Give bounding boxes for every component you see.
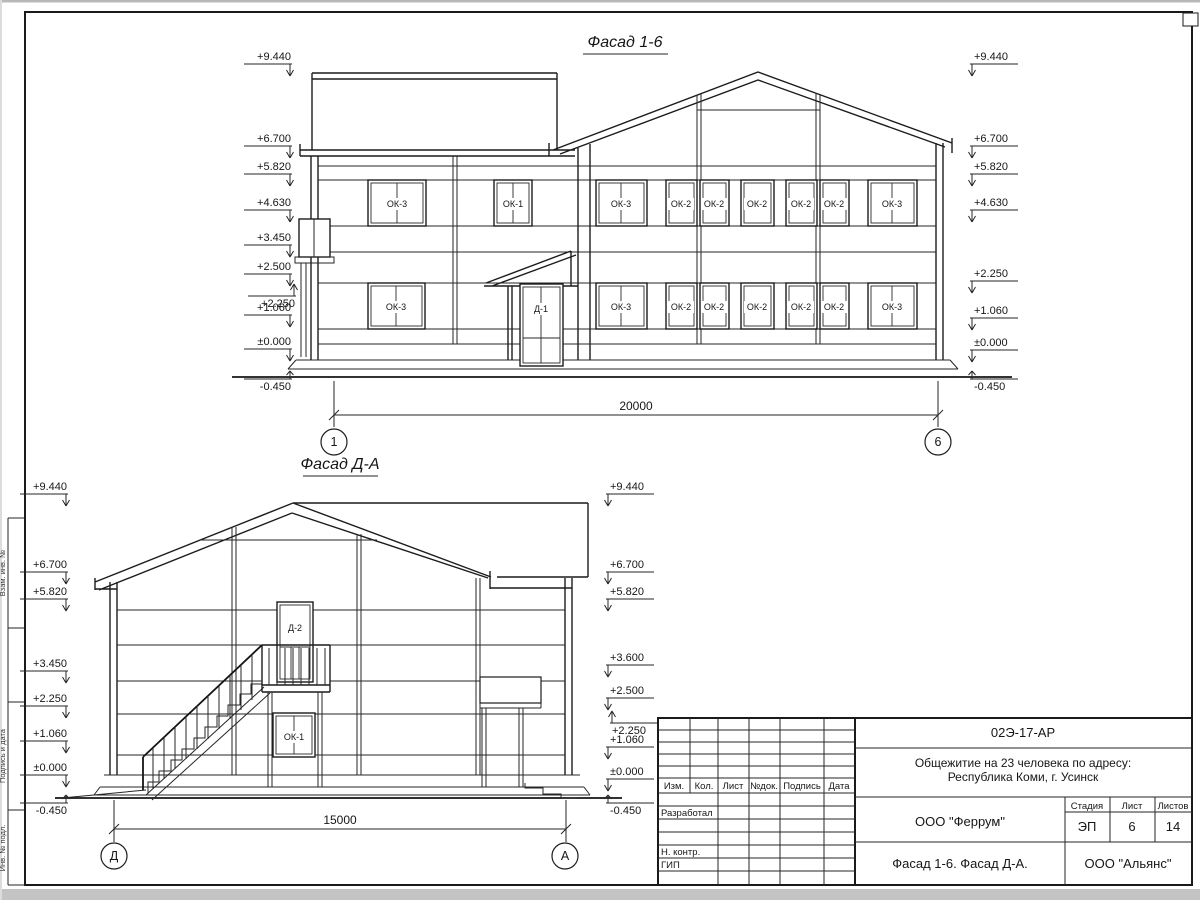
window: ОК-2 — [700, 180, 729, 226]
window: ОК-3 — [868, 180, 917, 226]
facade-d-a-title: Фасад Д-А — [300, 456, 379, 473]
role-gip: ГИП — [661, 860, 680, 871]
elevation-mark: +3.450 — [33, 658, 67, 670]
client-org: ООО "Альянс" — [1085, 856, 1172, 871]
dimension-20000: 20000 — [329, 381, 943, 427]
window: ОК-2 — [741, 180, 774, 226]
stage-value: ЭП — [1078, 819, 1097, 834]
elevation-mark: +2.250 — [33, 693, 67, 705]
rev-header-izm: Изм. — [664, 781, 684, 792]
entrance-door: Д-1 — [520, 284, 563, 366]
window-label: ОК-3 — [882, 302, 902, 312]
designer-org: ООО "Феррум" — [915, 814, 1005, 829]
elevation-mark: -0.450 — [36, 805, 67, 817]
project-name-line2: Республика Коми, г. Усинск — [948, 770, 1099, 784]
page-edge-bottom — [0, 889, 1200, 900]
window-label: ОК-2 — [824, 302, 844, 312]
window: ОК-1 — [494, 180, 532, 226]
side-column-label: Подпись и дата — [0, 728, 7, 783]
roof-lines — [95, 503, 588, 590]
window-label: ОК-2 — [747, 302, 767, 312]
elevation-mark: +5.820 — [257, 161, 291, 173]
stair-rail — [143, 645, 262, 790]
elevation-mark: +6.700 — [257, 133, 291, 145]
elevation-mark: +3.600 — [610, 652, 644, 664]
page-edge-top — [0, 0, 1200, 3]
elevation-mark: +1.060 — [33, 728, 67, 740]
elevation-mark: +3.450 — [257, 232, 291, 244]
window-label: ОК-2 — [824, 199, 844, 209]
window-label: ОК-2 — [704, 302, 724, 312]
elevation-mark: +6.700 — [610, 559, 644, 571]
plinth-lines — [288, 360, 958, 369]
axis-label: А — [561, 849, 570, 863]
stair-steps — [148, 684, 262, 793]
rev-header-kol: Кол. — [695, 781, 714, 792]
elevation-marks-right: +9.440 +6.700 +5.820 +3.600 +2.500 +2.25… — [605, 481, 659, 817]
elevation-marks-right: +9.440 +6.700 +5.820 +4.630 +2.250 +1.06… — [969, 51, 1019, 393]
elevation-mark: +2.500 — [610, 685, 644, 697]
window-label: ОК-2 — [671, 302, 691, 312]
window-label: ОК-3 — [611, 199, 631, 209]
axis-bubbles: 1 6 — [321, 429, 951, 455]
rev-header-doc: №док. — [750, 781, 778, 792]
sheets-label: Листов — [1158, 801, 1189, 812]
axis-bubbles: Д А — [101, 843, 578, 869]
elevation-mark: -0.450 — [974, 381, 1005, 393]
window-label: ОК-3 — [387, 199, 407, 209]
elevation-mark: +4.630 — [974, 197, 1008, 209]
elevation-mark: -0.450 — [260, 381, 291, 393]
door-label: Д-2 — [288, 623, 302, 633]
elevation-mark: +5.820 — [610, 586, 644, 598]
sheet-title: Фасад 1-6. Фасад Д-А. — [892, 856, 1028, 871]
landing-slab — [262, 685, 330, 692]
elevation-marks-left: +9.440 +6.700 +5.820 +4.630 +3.450 +2.50… — [244, 51, 298, 393]
dimension-text: 15000 — [323, 813, 357, 827]
window: ОК-3 — [868, 283, 917, 329]
dimension-text: 20000 — [619, 399, 653, 413]
elevation-mark: -0.450 — [610, 805, 641, 817]
title-block: 02Э-17-АР Общежитие на 23 человека по ад… — [658, 718, 1192, 885]
window: ОК-3 — [368, 180, 426, 226]
window: ОК-2 — [786, 283, 817, 329]
elevation-mark: +6.700 — [33, 559, 67, 571]
drawing-sheet: Взам. инв. № Подпись и дата Инв. № подл.… — [0, 0, 1200, 900]
porch-canopy — [480, 677, 577, 798]
axis-label: 1 — [331, 435, 338, 449]
sheet-number: 6 — [1128, 819, 1135, 834]
window: ОК-2 — [786, 180, 817, 226]
stair-balusters — [153, 654, 252, 789]
window: ОК-2 — [820, 283, 849, 329]
window: ОК-3 — [596, 180, 647, 226]
window: ОК-2 — [741, 283, 774, 329]
window: ОК-2 — [820, 180, 849, 226]
elevation-mark: +5.820 — [974, 161, 1008, 173]
elevation-mark: +6.700 — [974, 133, 1008, 145]
rev-header-data: Дата — [828, 781, 850, 792]
window-label: ОК-1 — [503, 199, 523, 209]
window: ОК-2 — [666, 283, 697, 329]
facade-1-6-view: Фасад 1-6 ОК-3 ОК-1 ОК-3 ОК-2 ОК-2 ОК-2 … — [232, 34, 1018, 455]
window: ОК-2 — [666, 180, 697, 226]
role-ncontrol: Н. контр. — [661, 847, 700, 858]
side-column-lines — [8, 518, 25, 885]
elevation-mark: +9.440 — [33, 481, 67, 493]
window: ОК-3 — [368, 283, 425, 329]
window-label: ОК-3 — [386, 302, 406, 312]
facade-1-6-title: Фасад 1-6 — [588, 34, 663, 51]
window-label: ОК-2 — [791, 199, 811, 209]
upper-door: Д-2 — [277, 602, 313, 682]
project-name-line1: Общежитие на 23 человека по адресу: — [915, 756, 1131, 770]
windows-lower-row: ОК-3 ОК-3 ОК-2 ОК-2 ОК-2 ОК-2 ОК-2 ОК-3 … — [368, 283, 917, 366]
siding-and-joint-lines — [117, 527, 565, 775]
rev-header-list: Лист — [723, 781, 744, 792]
elevation-mark: ±0.000 — [33, 762, 67, 774]
elevation-mark: +9.440 — [974, 51, 1008, 63]
elevation-mark: +4.630 — [257, 197, 291, 209]
elevation-mark: +9.440 — [610, 481, 644, 493]
windows-upper-row: ОК-3 ОК-1 ОК-3 ОК-2 ОК-2 ОК-2 ОК-2 ОК-2 … — [368, 180, 917, 226]
document-code: 02Э-17-АР — [991, 725, 1055, 740]
rev-header-podpis: Подпись — [783, 781, 821, 792]
window: ОК-1 — [273, 713, 315, 757]
side-column-label: Взам. инв. № — [0, 550, 7, 596]
dimension-15000: 15000 — [109, 800, 571, 842]
side-column-label: Инв. № подл. — [0, 825, 7, 872]
window: ОК-2 — [700, 283, 729, 329]
elevation-mark: ±0.000 — [257, 336, 291, 348]
sheet-label: Лист — [1122, 801, 1143, 812]
elevation-mark: ±0.000 — [974, 337, 1008, 349]
elevation-mark: +9.440 — [257, 51, 291, 63]
window-label: ОК-3 — [611, 302, 631, 312]
elevation-mark: +1.060 — [974, 305, 1008, 317]
elevation-mark: +5.820 — [33, 586, 67, 598]
window-label: ОК-1 — [284, 732, 304, 742]
window-label: ОК-3 — [882, 199, 902, 209]
axis-label: Д — [110, 849, 119, 863]
elevation-mark: +1.060 — [257, 302, 291, 314]
stage-label: Стадия — [1071, 801, 1103, 812]
window-label: ОК-2 — [747, 199, 767, 209]
elevation-mark: +2.250 — [974, 268, 1008, 280]
elevation-mark: +2.500 — [257, 261, 291, 273]
window: ОК-3 — [596, 283, 647, 329]
door-label: Д-1 — [534, 304, 548, 314]
elevation-marks-left: +9.440 +6.700 +5.820 +3.450 +2.250 +1.06… — [20, 481, 70, 817]
facade-d-a-view: Фасад Д-А Д-2 ОК-1 — [20, 456, 658, 869]
sheets-total: 14 — [1166, 819, 1180, 834]
window-label: ОК-2 — [671, 199, 691, 209]
window-label: ОК-2 — [791, 302, 811, 312]
frame-corner-box — [1183, 13, 1198, 26]
role-developer: Разработал — [661, 808, 713, 819]
window-label: ОК-2 — [704, 199, 724, 209]
axis-label: 6 — [935, 435, 942, 449]
elevation-mark: +1.060 — [610, 734, 644, 746]
elevation-mark: ±0.000 — [610, 766, 644, 778]
